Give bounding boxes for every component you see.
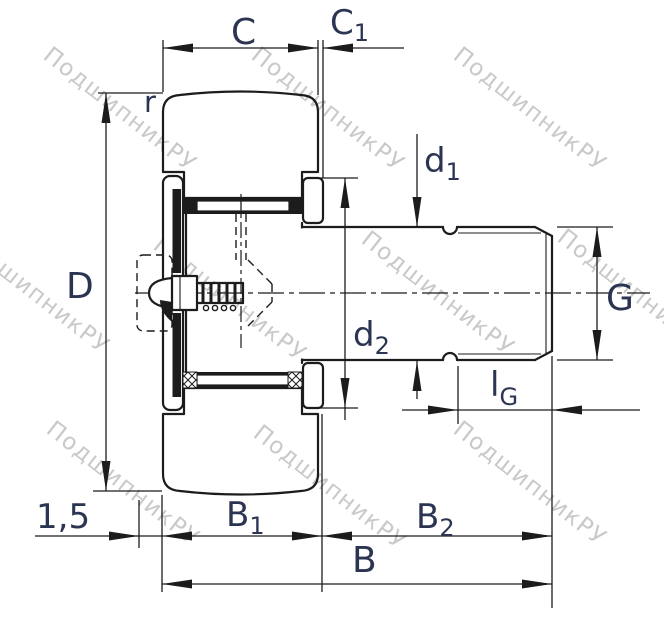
needle-rollers-top (183, 198, 302, 214)
label-d1: d1 (424, 141, 461, 186)
watermarks: ПодшипникРУ ПодшипникРУ ПодшипникРУ Подш… (0, 42, 664, 555)
label-D: D (66, 266, 94, 307)
watermark: ПодшипникРУ (38, 42, 201, 177)
label-G: G (606, 278, 634, 319)
watermark: ПодшипникРУ (448, 42, 611, 177)
label-B2: B2 (416, 497, 455, 542)
label-d2: d2 (353, 315, 390, 360)
watermark: ПодшипникРУ (0, 224, 114, 359)
technical-drawing-page: ПодшипникРУ ПодшипникРУ ПодшипникРУ Подш… (0, 0, 664, 617)
label-chamfer: 1,5 (36, 497, 90, 537)
thread-undercut-bottom (443, 353, 457, 360)
label-B1: B1 (226, 495, 265, 540)
watermark: ПодшипникРУ (448, 416, 611, 551)
thread-undercut-top (443, 227, 457, 234)
outer-ring-bottom-section (163, 388, 318, 495)
seal-crosshatch-right (288, 372, 302, 388)
label-lG: lG (490, 365, 518, 411)
watermark: ПодшипникРУ (246, 42, 409, 177)
label-C: C (231, 12, 256, 53)
seal-crosshatch-left (183, 372, 197, 388)
label-C1: C1 (330, 3, 369, 47)
flange-washer-bottom (303, 363, 323, 408)
label-B: B (352, 540, 377, 581)
cam-follower-section-drawing: ПодшипникРУ ПодшипникРУ ПодшипникРУ Подш… (0, 0, 664, 617)
grease-nipple-body (172, 276, 197, 310)
dimension-d2 (320, 178, 358, 420)
needle-rollers-bottom (183, 372, 302, 388)
side-plate-section-lower (173, 313, 182, 397)
flange-washer-top (303, 178, 323, 223)
side-plate-section-upper (173, 189, 182, 273)
label-r: r (144, 85, 156, 119)
